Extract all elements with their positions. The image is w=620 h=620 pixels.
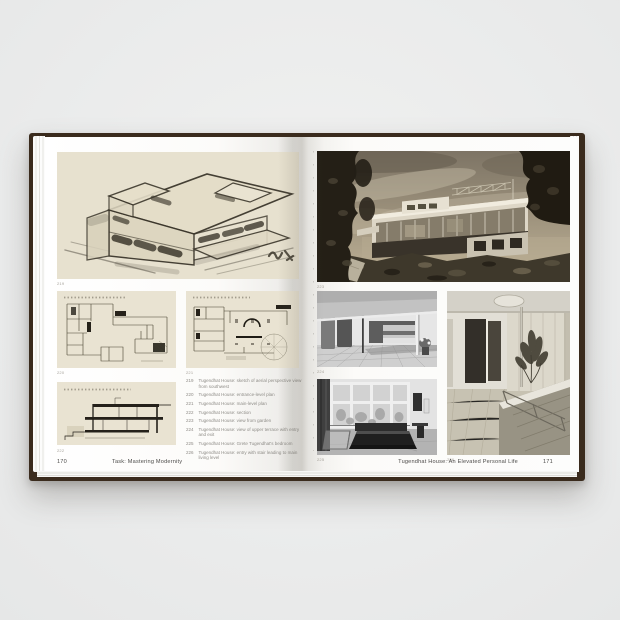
- main-level-plan-drawing: [186, 291, 299, 368]
- main-level-plan-image: [186, 291, 299, 368]
- page-edges-bottom: [37, 471, 577, 477]
- aerial-sketch-drawing: [57, 152, 299, 279]
- figure-number-221: 221: [186, 370, 193, 375]
- right-running-title: Tugendhat House: An Elevated Personal Li…: [385, 459, 518, 465]
- caption-221: 221Tugendhat House: main-level plan: [186, 401, 304, 407]
- entrance-hall-photo-art: [447, 291, 570, 455]
- bedroom-photo-art: [317, 379, 437, 455]
- open-spread: 219: [45, 137, 577, 471]
- aerial-sketch-image: [57, 152, 299, 279]
- left-running-title: Task: Mastering Modernity: [112, 459, 182, 465]
- caption-226: 226Tugendhat House: entry with stair lea…: [186, 450, 304, 461]
- figure-number-224: 224: [317, 369, 324, 374]
- caption-225: 225Tugendhat House: Grete Tugendhat's be…: [186, 441, 304, 447]
- entrance-hall-photo: [447, 291, 570, 455]
- caption-223: 223Tugendhat House: view from garden: [186, 418, 304, 424]
- page-edges-left: [33, 136, 45, 472]
- caption-224: 224Tugendhat House: view of upper terrac…: [186, 427, 304, 438]
- section-drawing: [57, 382, 176, 445]
- figure-number-220: 220: [57, 370, 64, 375]
- open-book: 219: [29, 133, 585, 481]
- right-page-number: 171: [543, 459, 553, 465]
- upper-terrace-photo-art: [317, 291, 437, 367]
- caption-list: 219Tugendhat House: sketch of aerial per…: [186, 378, 304, 464]
- garden-view-photo: [317, 151, 570, 282]
- garden-view-photo-art: [317, 151, 570, 282]
- figure-number-219: 219: [57, 281, 64, 286]
- figure-number-222: 222: [57, 448, 64, 453]
- entrance-level-plan-image: [57, 291, 176, 368]
- upper-terrace-photo: [317, 291, 437, 367]
- product-photo-backdrop: 219: [0, 0, 620, 620]
- caption-220: 220Tugendhat House: entrance-level plan: [186, 392, 304, 398]
- section-drawing-image: [57, 382, 176, 445]
- bedroom-photo: [317, 379, 437, 455]
- figure-number-225: 225: [317, 457, 324, 462]
- left-page-number: 170: [57, 459, 67, 465]
- caption-219: 219Tugendhat House: sketch of aerial per…: [186, 378, 304, 389]
- figure-number-223: 223: [317, 284, 324, 289]
- entrance-level-plan-drawing: [57, 291, 176, 368]
- caption-222: 222Tugendhat House: section: [186, 410, 304, 416]
- binding-stitch-dots: [313, 151, 314, 451]
